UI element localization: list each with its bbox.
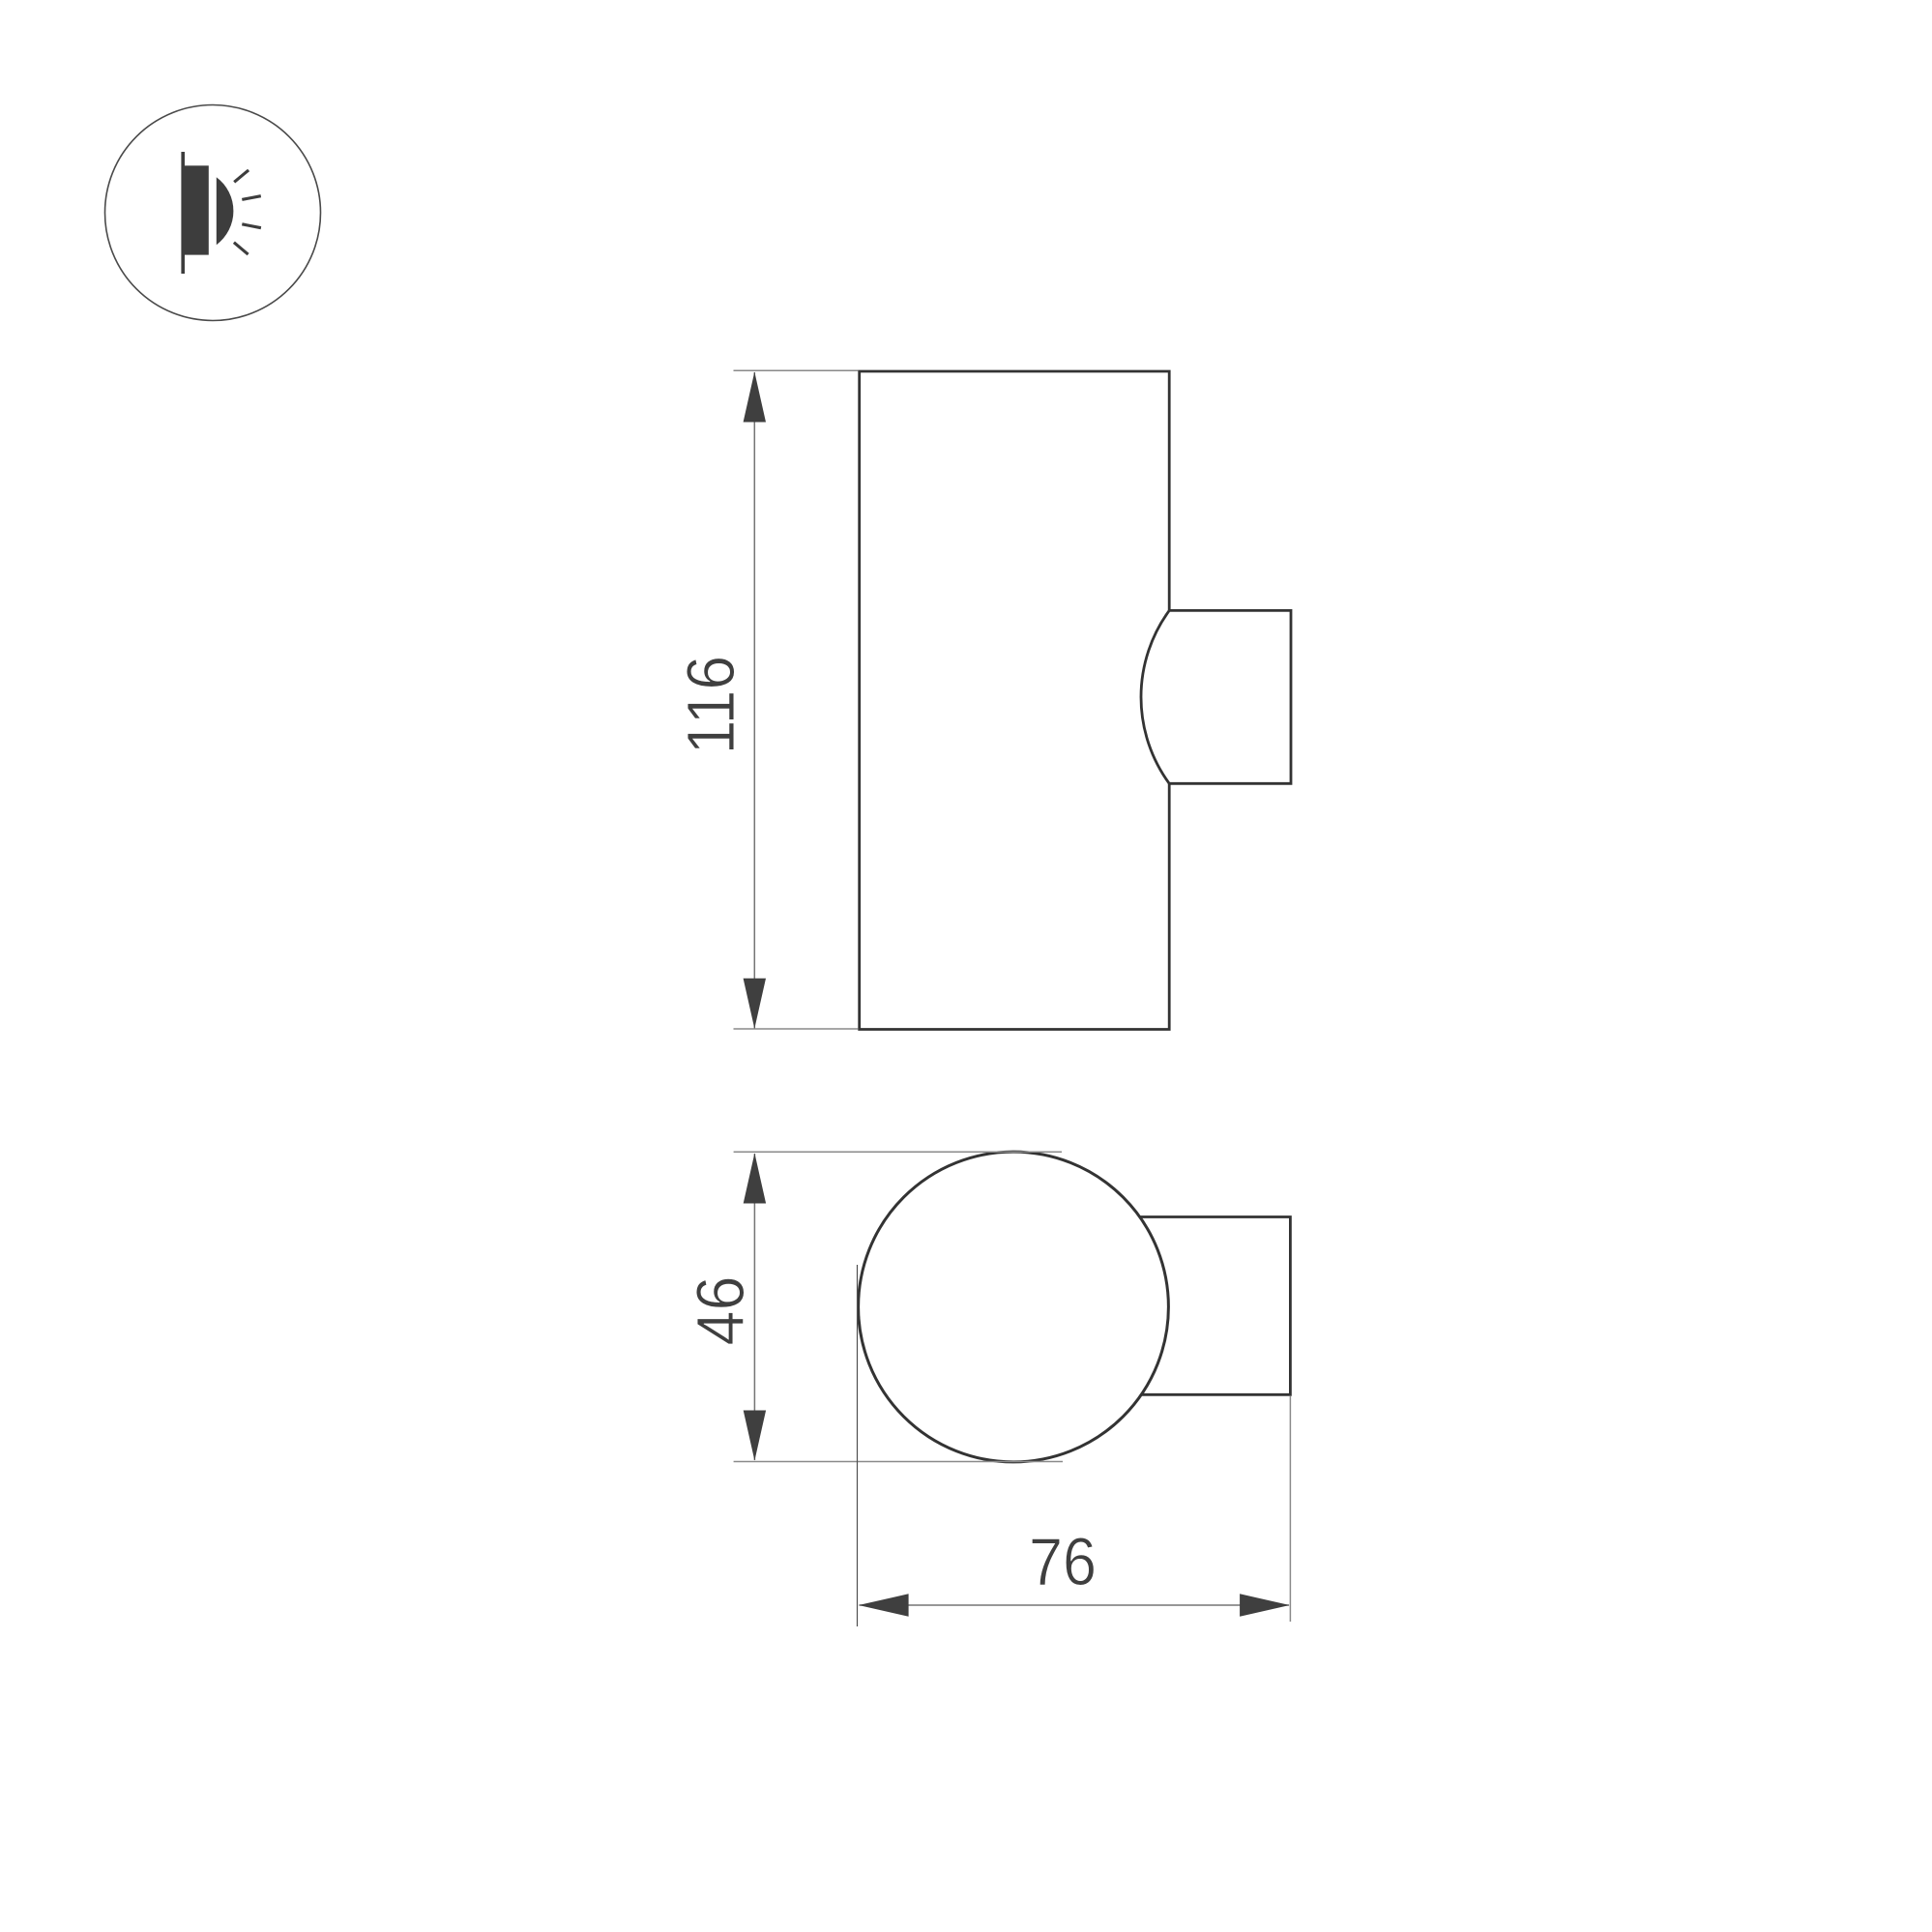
svg-text:116: 116 — [673, 656, 748, 755]
svg-text:76: 76 — [1029, 1524, 1097, 1599]
svg-text:46: 46 — [683, 1276, 758, 1346]
